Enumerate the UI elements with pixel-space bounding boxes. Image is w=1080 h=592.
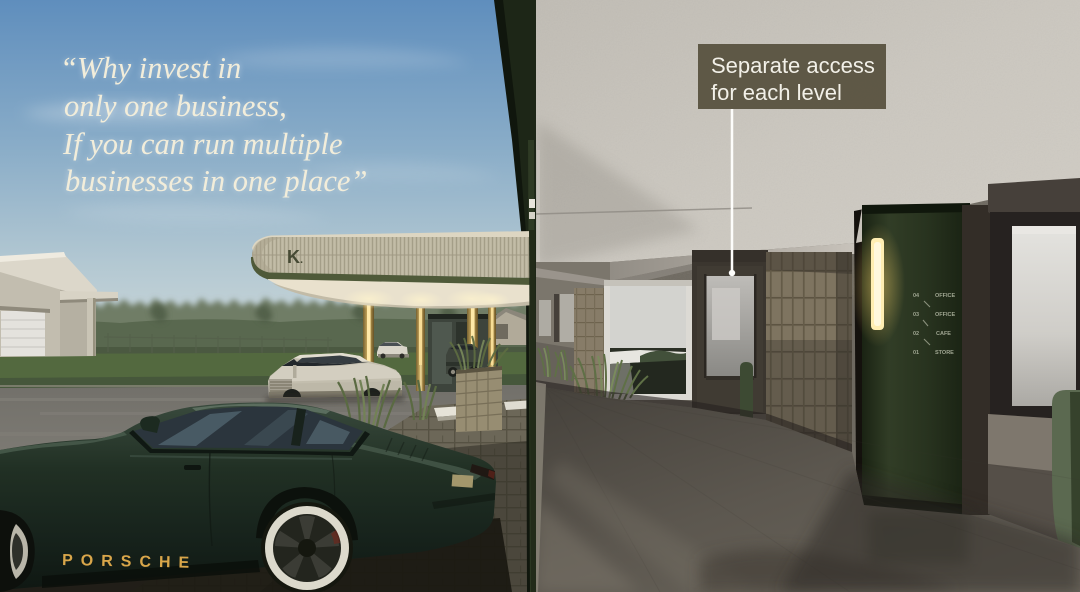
- svg-text:“Why invest in: “Why invest in: [60, 51, 241, 85]
- svg-text:CAFE: CAFE: [936, 331, 951, 337]
- svg-text:PORSCHE: PORSCHE: [62, 552, 197, 572]
- svg-text:03: 03: [913, 312, 919, 318]
- svg-text:If you can run multiple: If you can run multiple: [62, 127, 343, 161]
- svg-text:01: 01: [913, 350, 919, 356]
- svg-text:Separate access: Separate access: [711, 53, 875, 78]
- svg-text:OFFICE: OFFICE: [935, 312, 955, 318]
- svg-text:businesses in one place”: businesses in one place”: [65, 164, 367, 198]
- svg-text:02: 02: [913, 331, 919, 337]
- svg-text:for each level: for each level: [711, 80, 842, 105]
- svg-text:OFFICE: OFFICE: [935, 293, 955, 299]
- svg-text:STORE: STORE: [935, 350, 954, 356]
- svg-text:only one business,: only one business,: [64, 89, 287, 123]
- svg-text:04: 04: [913, 293, 920, 299]
